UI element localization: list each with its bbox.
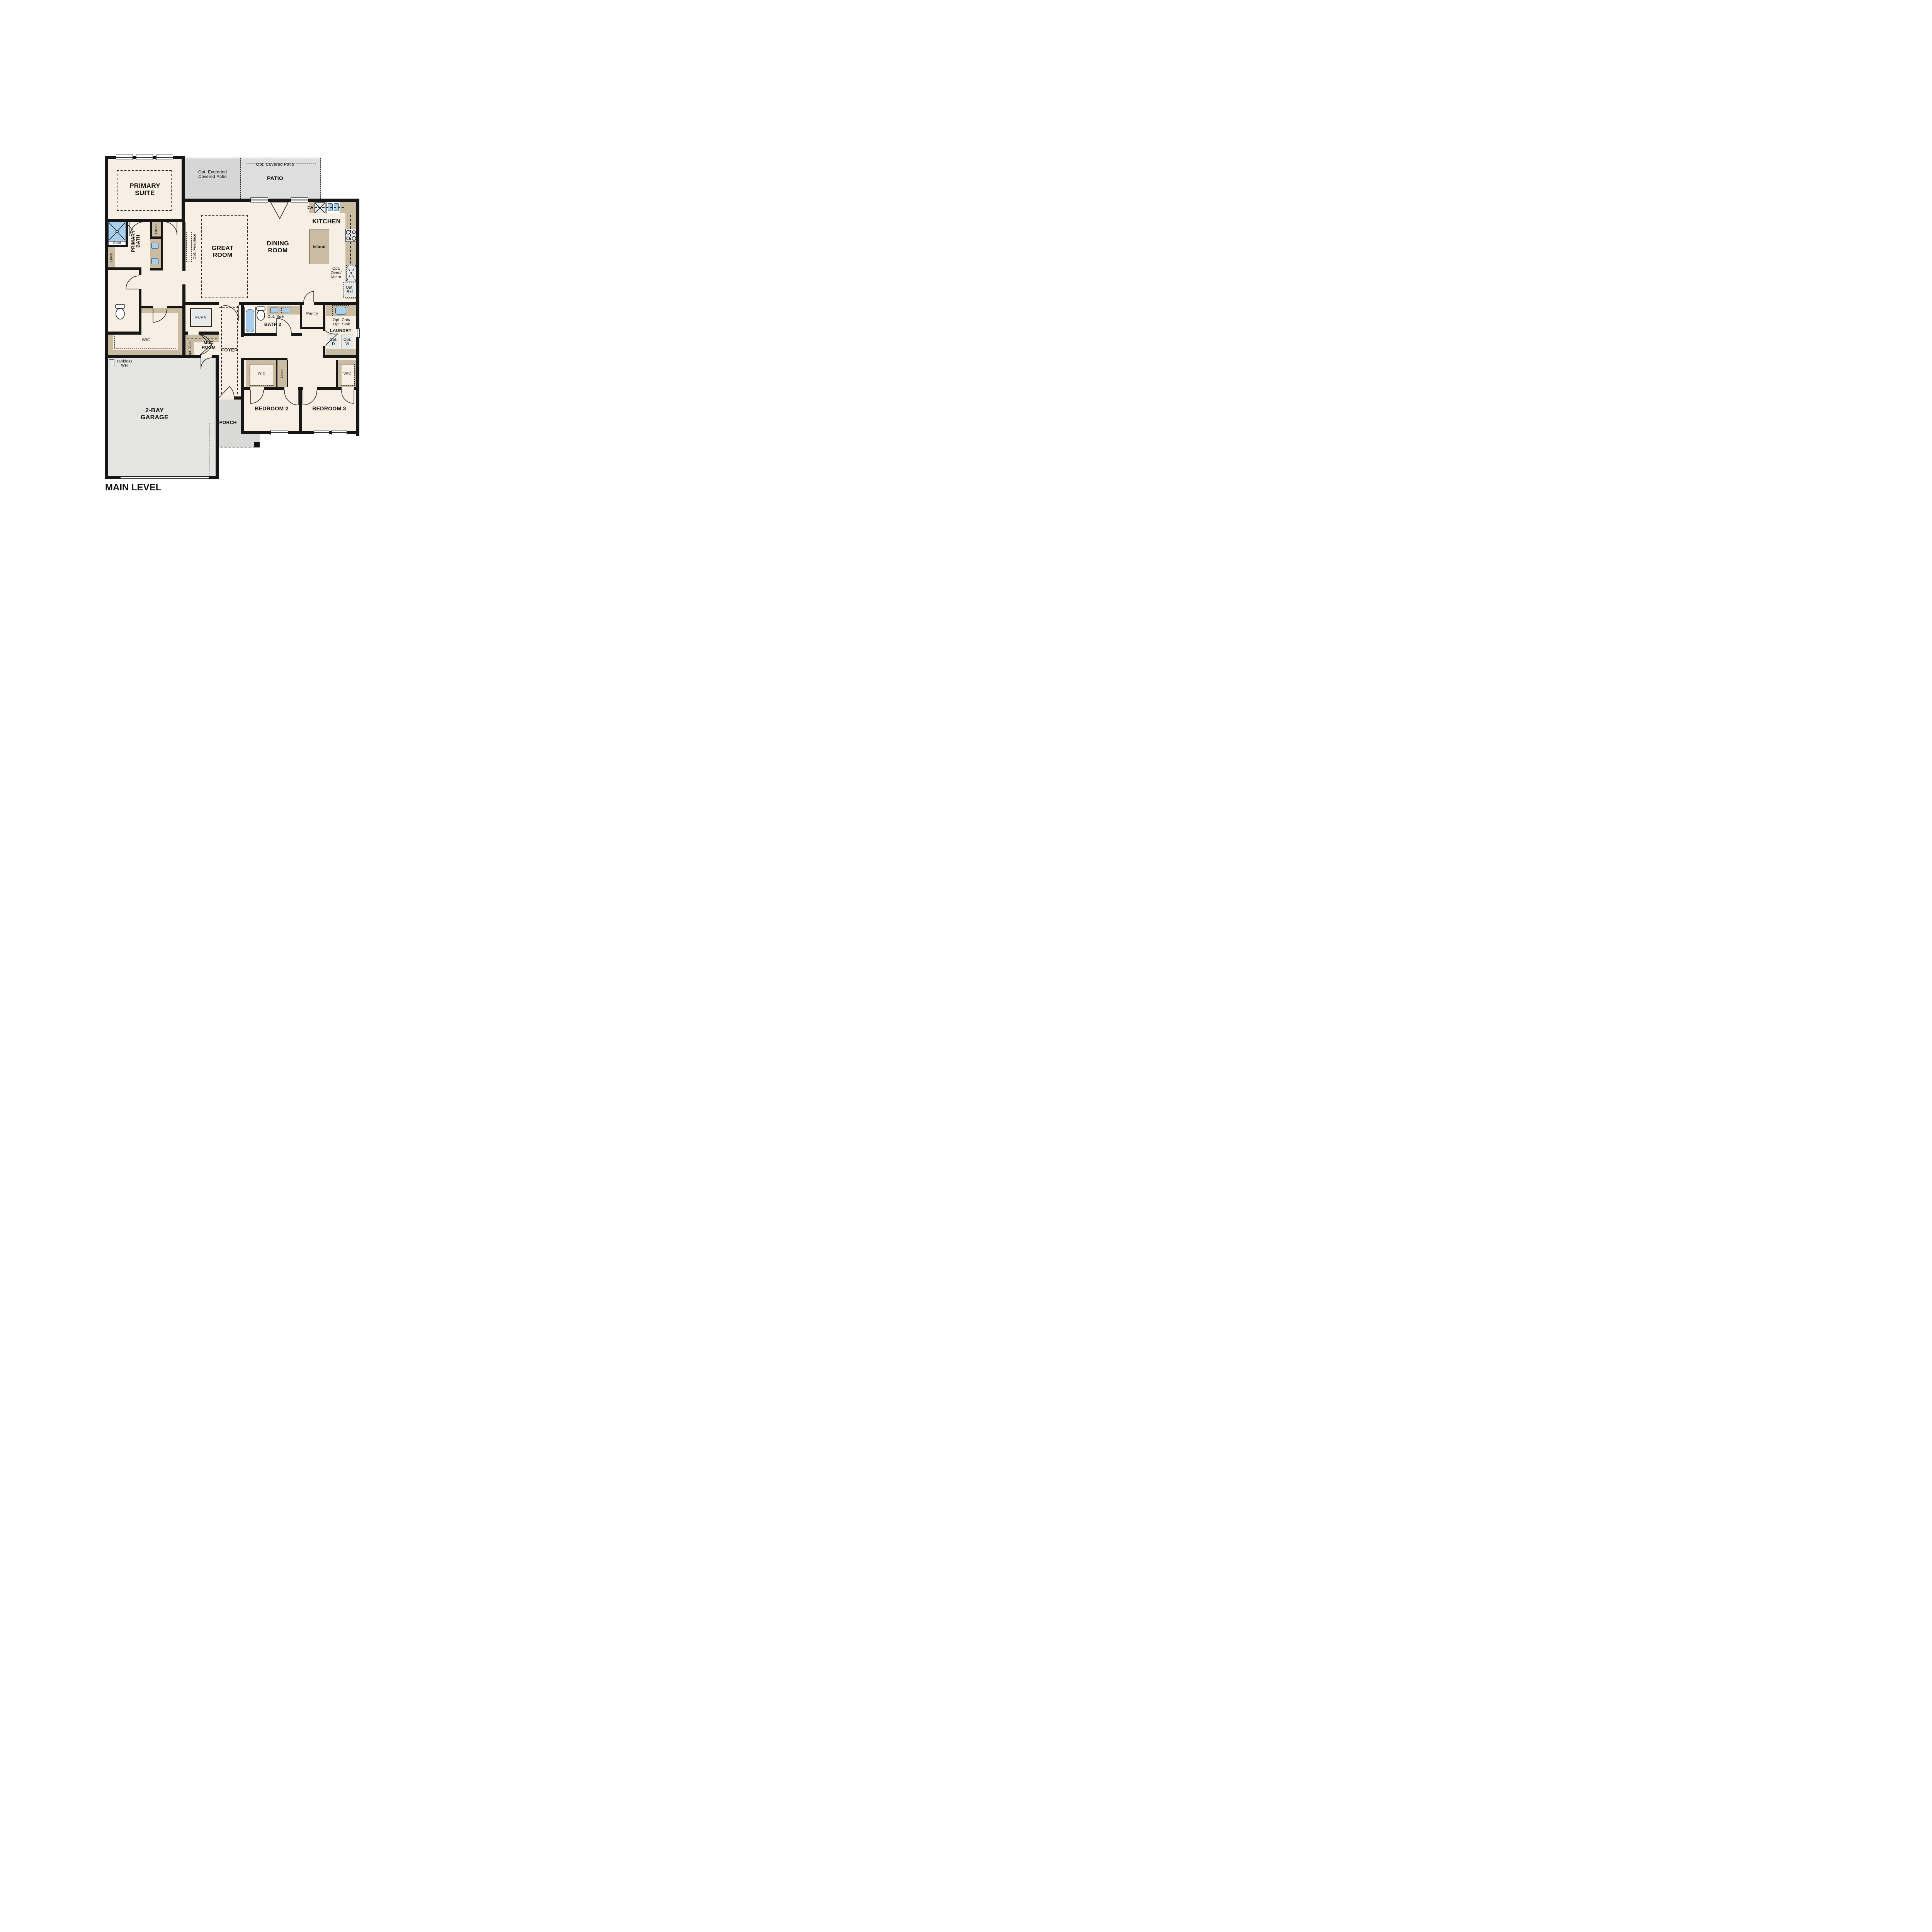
label-primary-suite: PRIMARY SUITE bbox=[129, 182, 160, 197]
label-linen-hall: Linen bbox=[280, 369, 284, 378]
label-island: Island bbox=[313, 245, 326, 249]
window bbox=[291, 197, 308, 202]
vanity-sink-1 bbox=[151, 243, 158, 249]
window bbox=[314, 430, 329, 435]
mud-door-opening bbox=[188, 332, 199, 335]
opt-oven-micro-box bbox=[346, 265, 356, 281]
label-opt-ext-patio: Opt. Extended Covered Patio bbox=[198, 170, 227, 180]
wall bbox=[299, 390, 302, 431]
label-mud-room: MUD ROOM bbox=[202, 341, 215, 350]
window bbox=[116, 155, 133, 160]
laundry-sink-dashed bbox=[332, 305, 349, 316]
label-main-level: MAIN LEVEL bbox=[105, 482, 161, 493]
great-room-side-opening bbox=[182, 270, 185, 285]
wall bbox=[241, 302, 244, 434]
wall bbox=[161, 239, 163, 270]
label-wic-bed2: WIC bbox=[258, 371, 265, 376]
label-opt-cab-sink: Opt. Cab/ Opt. Sink bbox=[333, 318, 350, 327]
wall bbox=[108, 267, 141, 270]
label-tankless-wh: Tankless WH bbox=[116, 359, 132, 368]
label-patio: PATIO bbox=[267, 175, 283, 182]
label-kitchen: KITCHEN bbox=[312, 218, 340, 225]
window bbox=[136, 155, 153, 160]
wic3-door-opening bbox=[342, 387, 354, 390]
bath2-opt-sink bbox=[281, 308, 290, 313]
bath2-sink bbox=[270, 308, 278, 313]
wall bbox=[182, 156, 185, 222]
wall bbox=[185, 199, 359, 202]
bed2-door-opening bbox=[284, 387, 298, 390]
wall bbox=[150, 268, 163, 270]
label-porch: PORCH bbox=[219, 420, 237, 425]
label-opt-oven-micro: Opt. Oven/ Micro bbox=[331, 267, 342, 280]
label-dw: DW bbox=[306, 206, 313, 210]
laundry-counter-lower bbox=[326, 349, 356, 355]
floor-plan-page: PRIMARY SUITE Opt. Extended Covered Pati… bbox=[0, 0, 493, 638]
label-pantry: Pantry bbox=[306, 311, 318, 316]
bath2-tub bbox=[246, 309, 254, 332]
wall bbox=[105, 219, 185, 222]
label-opt-valet: Opt. Valet bbox=[188, 340, 192, 357]
label-garage: 2-BAY GARAGE bbox=[141, 407, 168, 421]
window bbox=[156, 155, 173, 160]
label-linen-top: Linen bbox=[155, 224, 159, 234]
wall bbox=[287, 360, 288, 387]
wall bbox=[126, 222, 128, 247]
vanity-sink-2 bbox=[151, 258, 158, 264]
dishwasher bbox=[315, 202, 325, 213]
label-foyer: FOYER bbox=[221, 347, 238, 352]
wall bbox=[356, 199, 359, 436]
label-furn: FURN bbox=[196, 315, 207, 320]
tankless-water-heater bbox=[109, 359, 114, 366]
wall bbox=[323, 302, 325, 358]
label-great-room: GREAT ROOM bbox=[212, 245, 233, 259]
label-opt-ref: Opt. Ref bbox=[346, 286, 354, 294]
mud-bench-dashed bbox=[187, 338, 217, 338]
wall bbox=[185, 302, 359, 305]
wall bbox=[276, 360, 277, 387]
laundry-door-opening bbox=[323, 331, 325, 346]
wall bbox=[141, 306, 153, 308]
opt-fireplace-box bbox=[186, 232, 192, 262]
hall-opening bbox=[241, 337, 244, 358]
wall bbox=[300, 305, 302, 329]
wall bbox=[300, 327, 325, 329]
wall bbox=[108, 332, 141, 335]
counter-dash-top bbox=[311, 207, 344, 208]
porch-post bbox=[254, 442, 260, 447]
label-opt-d: Opt. D bbox=[330, 338, 337, 346]
pantry-door-opening bbox=[304, 302, 314, 305]
window bbox=[356, 328, 360, 338]
label-wic-bed3: WIC bbox=[344, 371, 351, 376]
label-bath2: BATH 2 bbox=[264, 322, 281, 327]
wic2-door-opening bbox=[250, 387, 264, 390]
wall bbox=[241, 333, 302, 336]
label-opt-fireplace: Opt. Fireplace bbox=[192, 233, 197, 259]
wc-door-opening bbox=[139, 275, 141, 289]
shower bbox=[108, 222, 126, 241]
wall bbox=[216, 355, 219, 479]
garage-entry-opening bbox=[201, 355, 212, 358]
foyer-opening bbox=[219, 302, 239, 305]
water-closet bbox=[108, 270, 139, 332]
wall bbox=[336, 360, 338, 387]
wall bbox=[182, 222, 185, 358]
bed3-door-opening bbox=[303, 387, 317, 390]
wall bbox=[105, 156, 108, 479]
label-opt-w: Opt. W bbox=[344, 338, 351, 346]
stove bbox=[345, 229, 356, 242]
window bbox=[332, 430, 347, 435]
wall bbox=[325, 355, 359, 358]
porch-edge-dashed bbox=[216, 444, 259, 447]
label-bedroom3: BEDROOM 3 bbox=[312, 406, 346, 412]
label-linen-left: Linen bbox=[110, 253, 114, 262]
label-seat: Seat bbox=[113, 241, 121, 246]
label-bedroom2: BEDROOM 2 bbox=[255, 406, 289, 412]
label-laundry: LAUNDRY bbox=[330, 328, 351, 333]
window bbox=[250, 197, 268, 202]
label-primary-bath: PRIMARY BATH bbox=[131, 230, 141, 252]
bath2-door-opening bbox=[277, 333, 291, 336]
garage-door-dashed bbox=[120, 423, 209, 476]
wall bbox=[167, 306, 182, 308]
window bbox=[270, 430, 288, 435]
counter-dash-right bbox=[350, 215, 351, 264]
label-opt-covered-patio: Opt. Covered Patio bbox=[256, 162, 294, 167]
label-wic-primary: WIC bbox=[142, 338, 150, 342]
front-door-opening bbox=[219, 396, 234, 400]
wall bbox=[244, 358, 287, 360]
label-dining-room: DINING ROOM bbox=[267, 240, 289, 254]
garage-door-opening bbox=[121, 476, 209, 479]
label-opt-sink: Opt. Sink bbox=[267, 315, 284, 319]
